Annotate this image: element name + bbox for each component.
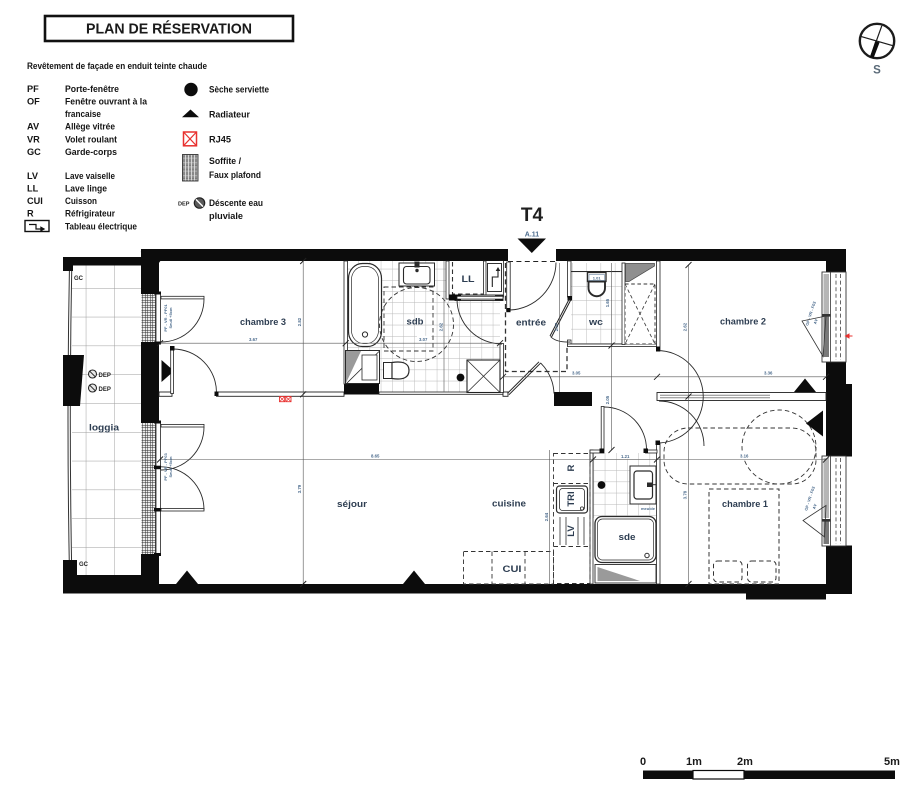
svg-text:3.79: 3.79 — [297, 484, 302, 493]
svg-text:Cuisson: Cuisson — [65, 196, 97, 206]
svg-text:chambre 3: chambre 3 — [240, 317, 286, 328]
svg-text:meuble: meuble — [641, 506, 656, 511]
svg-text:R: R — [566, 464, 577, 471]
svg-text:3.07: 3.07 — [419, 337, 428, 342]
svg-text:Seuil +5cm: Seuil +5cm — [168, 456, 173, 477]
svg-text:2m: 2m — [737, 756, 753, 768]
svg-text:Porte-fenêtre: Porte-fenêtre — [65, 84, 119, 94]
svg-text:1m: 1m — [686, 756, 702, 768]
svg-text:A.11: A.11 — [525, 232, 540, 239]
svg-text:Allège vitrée: Allège vitrée — [65, 122, 115, 132]
svg-text:LV: LV — [27, 171, 39, 181]
svg-text:chambre 1: chambre 1 — [722, 499, 769, 510]
svg-text:GC: GC — [27, 147, 41, 157]
svg-text:Faux plafond: Faux plafond — [209, 170, 261, 180]
svg-text:Soffite /: Soffite / — [209, 156, 241, 166]
svg-text:2.05: 2.05 — [605, 395, 610, 404]
svg-text:Déscente eau: Déscente eau — [209, 198, 263, 208]
svg-text:3.05: 3.05 — [572, 371, 581, 376]
svg-text:Lave vaiselle: Lave vaiselle — [65, 171, 115, 181]
svg-text:0: 0 — [640, 756, 646, 768]
svg-text:GC: GC — [74, 276, 84, 282]
svg-text:2.62: 2.62 — [438, 322, 443, 331]
svg-text:cuisine: cuisine — [492, 499, 526, 510]
svg-text:sde: sde — [619, 532, 636, 543]
svg-text:Garde-corps: Garde-corps — [65, 147, 117, 157]
svg-text:R: R — [27, 209, 34, 219]
svg-text:sdb: sdb — [407, 317, 424, 328]
svg-text:Revêtement de façade en enduit: Revêtement de façade en enduit teinte ch… — [27, 61, 207, 71]
svg-text:pluviale: pluviale — [209, 211, 243, 221]
svg-text:Lave linge: Lave linge — [65, 184, 107, 194]
svg-text:OF: OF — [27, 97, 40, 107]
svg-text:CUI: CUI — [27, 196, 43, 206]
svg-text:2.64: 2.64 — [544, 512, 549, 521]
svg-text:AV: AV — [27, 122, 40, 132]
svg-text:GC: GC — [79, 562, 89, 568]
svg-text:S: S — [873, 65, 881, 77]
svg-text:3.16: 3.16 — [740, 453, 749, 458]
svg-text:Réfrigirateur: Réfrigirateur — [65, 209, 115, 219]
svg-text:T4: T4 — [521, 205, 544, 226]
svg-text:DEP: DEP — [99, 387, 111, 393]
svg-text:entrée: entrée — [516, 318, 546, 329]
svg-text:1.65: 1.65 — [605, 298, 610, 307]
svg-text:VR: VR — [27, 135, 40, 145]
svg-text:Sèche serviette: Sèche serviette — [209, 85, 269, 95]
svg-text:5m: 5m — [884, 756, 900, 768]
svg-text:3.36: 3.36 — [764, 371, 773, 376]
svg-text:francaise: francaise — [65, 109, 101, 119]
svg-text:séjour: séjour — [337, 499, 367, 510]
svg-text:CUI: CUI — [503, 564, 522, 575]
svg-text:DEP: DEP — [178, 202, 190, 208]
svg-text:Volet roulant: Volet roulant — [65, 135, 117, 145]
svg-text:Seuil +5cm: Seuil +5cm — [168, 307, 173, 328]
svg-text:2.07: 2.07 — [554, 322, 559, 331]
svg-text:LL: LL — [27, 184, 39, 194]
svg-text:2.62: 2.62 — [682, 322, 687, 331]
svg-text:Fenêtre ouvrant à la: Fenêtre ouvrant à la — [65, 97, 148, 107]
svg-text:RJ45: RJ45 — [209, 135, 231, 145]
svg-text:1.01: 1.01 — [593, 275, 602, 280]
svg-text:8.65: 8.65 — [371, 453, 380, 458]
svg-text:loggia: loggia — [89, 423, 120, 434]
svg-text:PLAN DE RÉSERVATION: PLAN DE RÉSERVATION — [86, 21, 252, 38]
svg-text:LV: LV — [566, 525, 577, 537]
svg-text:3.67: 3.67 — [249, 337, 258, 342]
svg-text:1.21: 1.21 — [621, 454, 630, 459]
svg-text:DEP: DEP — [99, 373, 111, 379]
svg-text:PF: PF — [27, 84, 39, 94]
svg-text:LL: LL — [462, 274, 475, 285]
svg-text:TRI: TRI — [566, 491, 577, 506]
svg-text:Tableau électrique: Tableau électrique — [65, 222, 137, 232]
svg-text:Radiateur: Radiateur — [209, 110, 250, 120]
svg-text:3.78: 3.78 — [682, 490, 687, 499]
svg-text:2.82: 2.82 — [297, 317, 302, 326]
svg-text:chambre 2: chambre 2 — [720, 317, 766, 328]
svg-text:wc: wc — [588, 317, 603, 328]
